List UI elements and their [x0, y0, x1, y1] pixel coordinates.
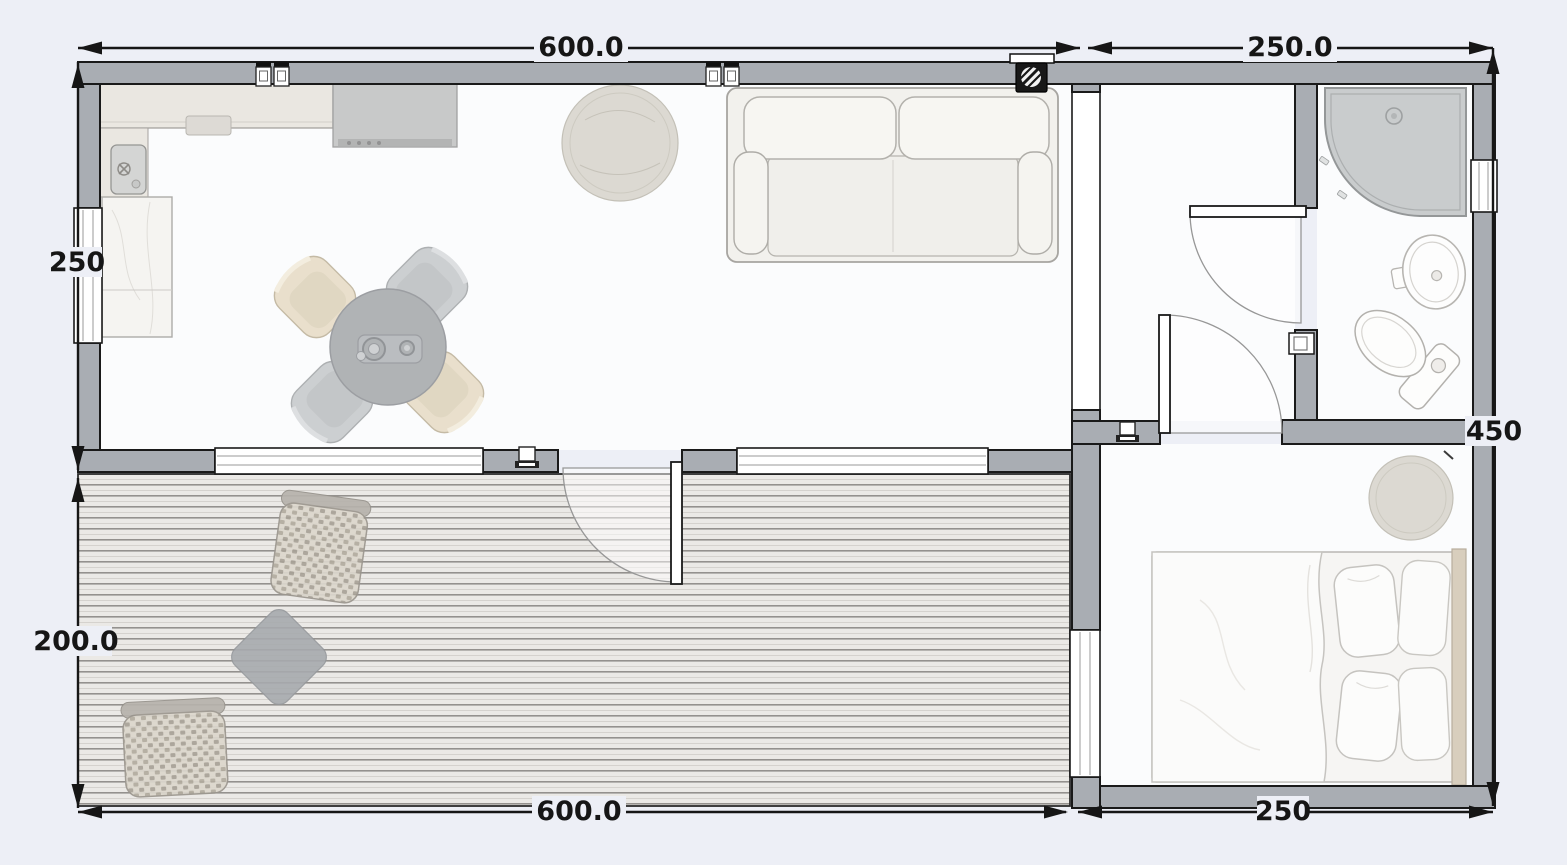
wall-living-south-4	[988, 450, 1072, 472]
corner-shower	[1319, 88, 1466, 216]
pillow-3	[1335, 669, 1404, 763]
floorplan-canvas: 600.0 250.0 250 200.0 600.0 250 450	[0, 0, 1567, 865]
wall-top	[78, 62, 1495, 84]
bathroom-door-leaf	[1190, 206, 1306, 217]
pillow-1	[1332, 563, 1401, 659]
dim-top-right: 250.0	[1247, 32, 1332, 63]
wall-living-south-3	[682, 450, 737, 472]
sofa-armrest-right	[1018, 152, 1052, 254]
counter-inset	[186, 116, 231, 135]
window-living-south-2	[737, 448, 988, 474]
power-outlet-icon	[706, 67, 721, 86]
pillow-2	[1397, 559, 1451, 656]
duvet	[1152, 552, 1326, 782]
dim-bottom-main: 600.0	[536, 796, 621, 827]
wicker-chair-2	[121, 697, 230, 797]
kitchen-sink	[111, 145, 146, 194]
wall-bath-bedroom	[1282, 420, 1473, 444]
deck	[78, 474, 1070, 806]
sofa-back-cushion-right	[899, 97, 1049, 159]
power-outlet-icon	[274, 67, 289, 86]
electrical-panel	[1010, 54, 1054, 92]
passage-stub-bottom	[1072, 410, 1100, 421]
floorplan-page: 600.0 250.0 250 200.0 600.0 250 450	[0, 0, 1567, 865]
sofa	[727, 88, 1058, 262]
power-outlet-icon	[256, 67, 271, 86]
dim-bottom-right: 250	[1255, 796, 1311, 827]
wall-left-upper	[78, 84, 100, 208]
passage-opening	[1072, 84, 1100, 421]
wall-bathroom-left-upper	[1295, 84, 1317, 208]
power-outlet-icon	[519, 447, 535, 461]
light-switch-bathroom	[1289, 333, 1314, 354]
power-outlet-icon	[724, 67, 739, 86]
sofa-armrest-left	[734, 152, 768, 254]
pillow-4	[1398, 667, 1451, 761]
wall-living-south-1	[78, 450, 215, 472]
sofa-back-cushion-left	[744, 97, 896, 159]
dim-top-main: 600.0	[538, 32, 623, 63]
double-bed	[1152, 549, 1466, 785]
window-living-south-1	[215, 448, 483, 474]
power-outlet-icon	[1120, 422, 1135, 435]
wall-bedroom-left-upper	[1072, 444, 1100, 630]
bedroom-door-leaf	[1159, 315, 1170, 433]
deck-door-leaf	[671, 462, 682, 584]
living-rug	[562, 85, 678, 201]
stove-block	[333, 84, 457, 147]
dim-right-side: 450	[1466, 416, 1522, 447]
wall-bedroom-left-lower	[1072, 777, 1100, 808]
stove-front-strip	[338, 139, 452, 146]
window-bedroom-left	[1070, 630, 1100, 777]
tea-tray	[357, 335, 423, 363]
outlet-hallway-wall	[1116, 422, 1139, 442]
bedroom-rug	[1369, 456, 1453, 540]
outlet-deck-wall	[515, 447, 539, 468]
dim-left-upper: 250	[49, 247, 105, 278]
passage-stub-top	[1072, 84, 1100, 92]
headboard	[1452, 549, 1466, 785]
tall-cabinet	[102, 197, 172, 337]
wicker-chair-1	[268, 489, 372, 605]
dim-left-lower: 200.0	[33, 626, 118, 657]
